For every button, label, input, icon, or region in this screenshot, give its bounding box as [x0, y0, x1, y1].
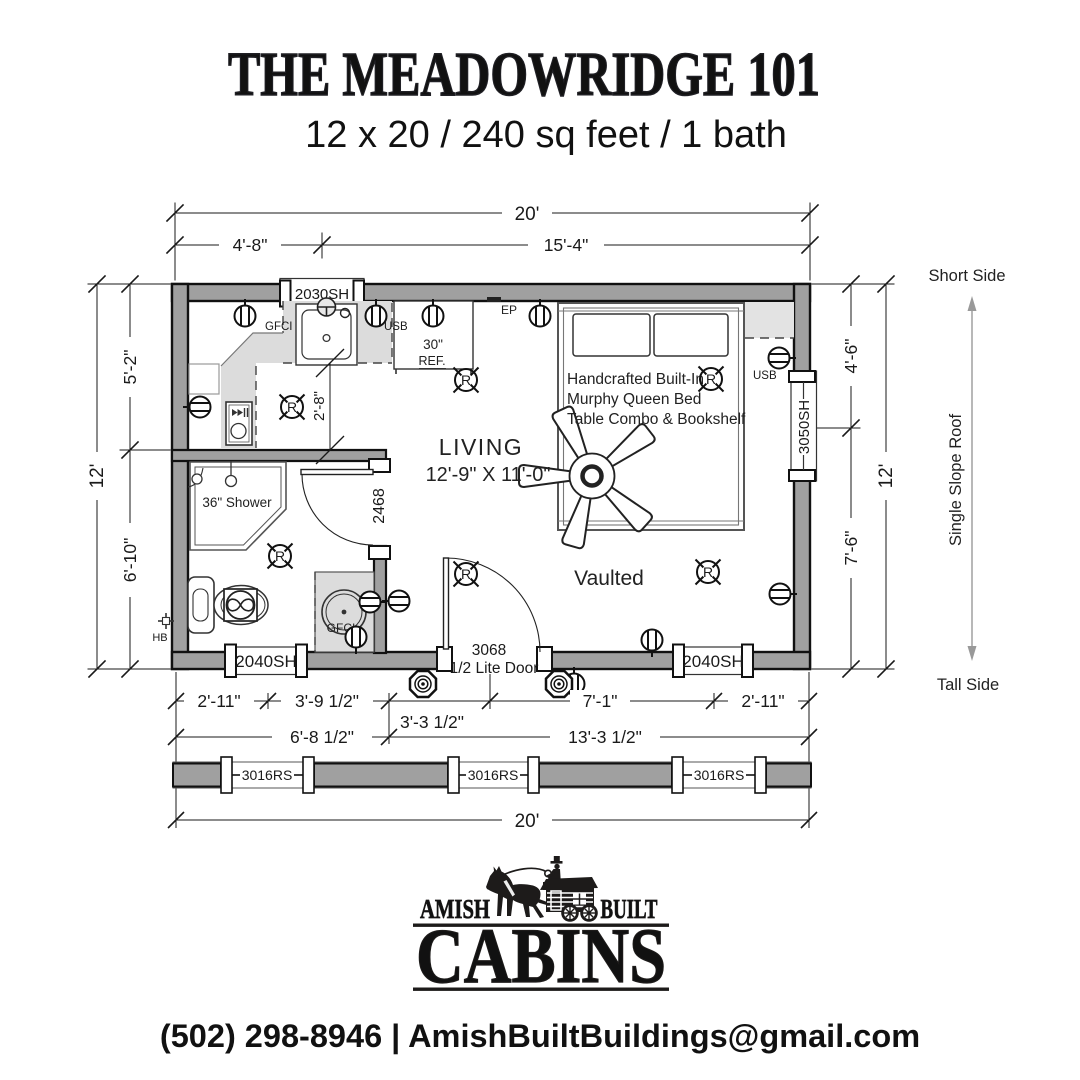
- svg-text:30": 30": [423, 337, 443, 352]
- svg-text:THE MEADOWRIDGE 101: THE MEADOWRIDGE 101: [228, 41, 820, 109]
- svg-text:REF.: REF.: [418, 354, 445, 368]
- svg-text:3068: 3068: [472, 642, 506, 659]
- svg-text:R: R: [461, 566, 471, 582]
- svg-text:7'-6": 7'-6": [841, 531, 861, 566]
- svg-text:2040SH: 2040SH: [682, 652, 743, 671]
- svg-text:Tall Side: Tall Side: [937, 676, 999, 694]
- svg-text:12': 12': [876, 464, 897, 489]
- svg-text:USB: USB: [753, 370, 777, 382]
- svg-text:7'-1": 7'-1": [583, 691, 618, 711]
- svg-text:12': 12': [87, 464, 108, 489]
- svg-text:R: R: [287, 399, 297, 415]
- svg-text:2'-11": 2'-11": [197, 691, 240, 711]
- svg-text:Murphy Queen Bed: Murphy Queen Bed: [567, 391, 701, 408]
- svg-text:2468: 2468: [371, 488, 388, 524]
- svg-text:Handcrafted Built-In: Handcrafted Built-In: [567, 371, 704, 388]
- svg-text:R: R: [706, 371, 716, 387]
- svg-text:Table Combo & Bookshelf: Table Combo & Bookshelf: [567, 411, 746, 428]
- svg-text:R: R: [461, 372, 471, 388]
- svg-text:12 x 20 / 240 sq feet / 1 bath: 12 x 20 / 240 sq feet / 1 bath: [305, 114, 787, 156]
- svg-text:13'-3 1/2": 13'-3 1/2": [568, 727, 642, 747]
- svg-text:3'-3 1/2": 3'-3 1/2": [400, 712, 464, 732]
- svg-text:Vaulted: Vaulted: [574, 567, 644, 590]
- svg-text:(502) 298-8946 | AmishBuiltBui: (502) 298-8946 | AmishBuiltBuildings@gma…: [160, 1018, 920, 1054]
- svg-text:5'-2": 5'-2": [120, 350, 140, 385]
- svg-text:GFCI: GFCI: [265, 321, 292, 333]
- svg-text:LIVING: LIVING: [439, 434, 523, 460]
- svg-text:2040SH: 2040SH: [235, 652, 296, 671]
- svg-text:4'-6": 4'-6": [841, 339, 861, 374]
- svg-text:R: R: [703, 564, 713, 580]
- svg-text:HB: HB: [152, 632, 167, 644]
- svg-text:R: R: [275, 548, 285, 564]
- svg-text:20': 20': [515, 811, 540, 832]
- svg-text:2'-8": 2'-8": [311, 391, 328, 421]
- svg-text:3050SH: 3050SH: [796, 400, 813, 454]
- svg-text:USB: USB: [384, 321, 408, 333]
- svg-text:12'-9" X 11'-0": 12'-9" X 11'-0": [426, 464, 551, 486]
- svg-text:3'-9 1/2": 3'-9 1/2": [295, 691, 359, 711]
- svg-text:3016RS: 3016RS: [242, 767, 293, 783]
- svg-text:6'-8 1/2": 6'-8 1/2": [290, 727, 354, 747]
- svg-text:6'-10": 6'-10": [120, 538, 140, 583]
- svg-text:1/2 Lite Door: 1/2 Lite Door: [450, 660, 539, 677]
- svg-text:15'-4": 15'-4": [544, 235, 589, 255]
- svg-text:20': 20': [515, 204, 540, 225]
- svg-text:3016RS: 3016RS: [694, 767, 745, 783]
- svg-text:36" Shower: 36" Shower: [202, 495, 272, 510]
- svg-text:4'-8": 4'-8": [233, 235, 268, 255]
- svg-text:CABINS: CABINS: [416, 912, 666, 999]
- svg-text:Short Side: Short Side: [928, 267, 1005, 285]
- svg-text:3016RS: 3016RS: [468, 767, 519, 783]
- svg-text:2'-11": 2'-11": [741, 691, 784, 711]
- svg-text:Single Slope Roof: Single Slope Roof: [947, 414, 965, 547]
- svg-text:EP: EP: [501, 303, 517, 317]
